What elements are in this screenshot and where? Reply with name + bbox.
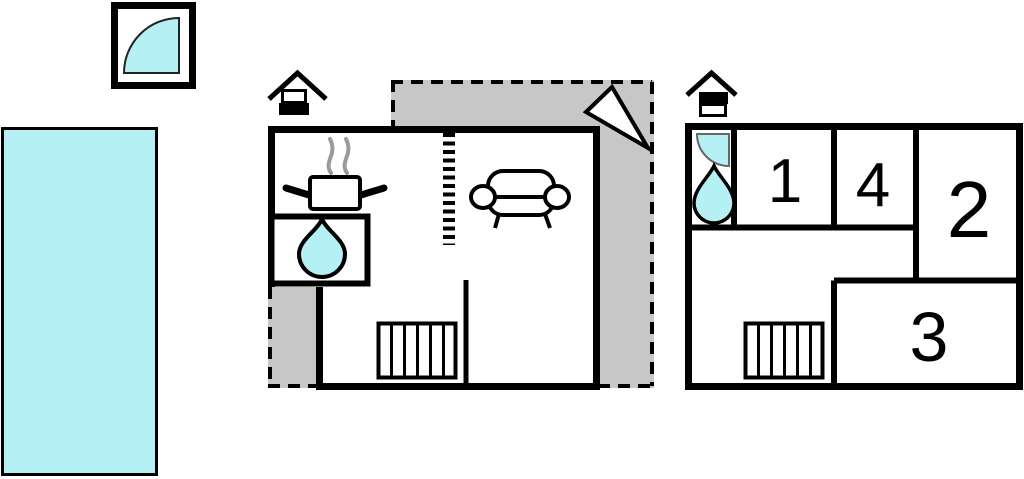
room-number-4: 4 — [856, 151, 890, 220]
pot-body — [310, 177, 360, 209]
terrace-left-strip — [268, 287, 317, 388]
room-number-3: 3 — [910, 298, 949, 376]
spa-box — [115, 6, 193, 86]
floorplan-drawing: 1 4 2 3 — [0, 0, 1024, 479]
chimney-roof — [687, 73, 736, 95]
chimney-body-white — [701, 105, 726, 116]
room-number-1: 1 — [768, 147, 802, 216]
swimming-pool — [3, 129, 157, 475]
stairs-icon — [379, 324, 456, 378]
chimney-icon — [687, 73, 736, 116]
sofa-armrest-right — [545, 186, 569, 208]
first-floor-plan: 1 4 2 3 — [687, 73, 1020, 387]
chimney-icon — [269, 73, 326, 115]
chimney-body-black — [699, 92, 728, 104]
room-number-2: 2 — [947, 165, 992, 254]
chimney-body-black — [279, 103, 309, 115]
floorplan-canvas: 1 4 2 3 — [0, 0, 1024, 479]
chimney-body-white — [283, 91, 306, 103]
sofa-armrest-left — [471, 186, 495, 208]
stairs-icon — [746, 324, 823, 378]
ground-floor-plan — [268, 73, 654, 388]
